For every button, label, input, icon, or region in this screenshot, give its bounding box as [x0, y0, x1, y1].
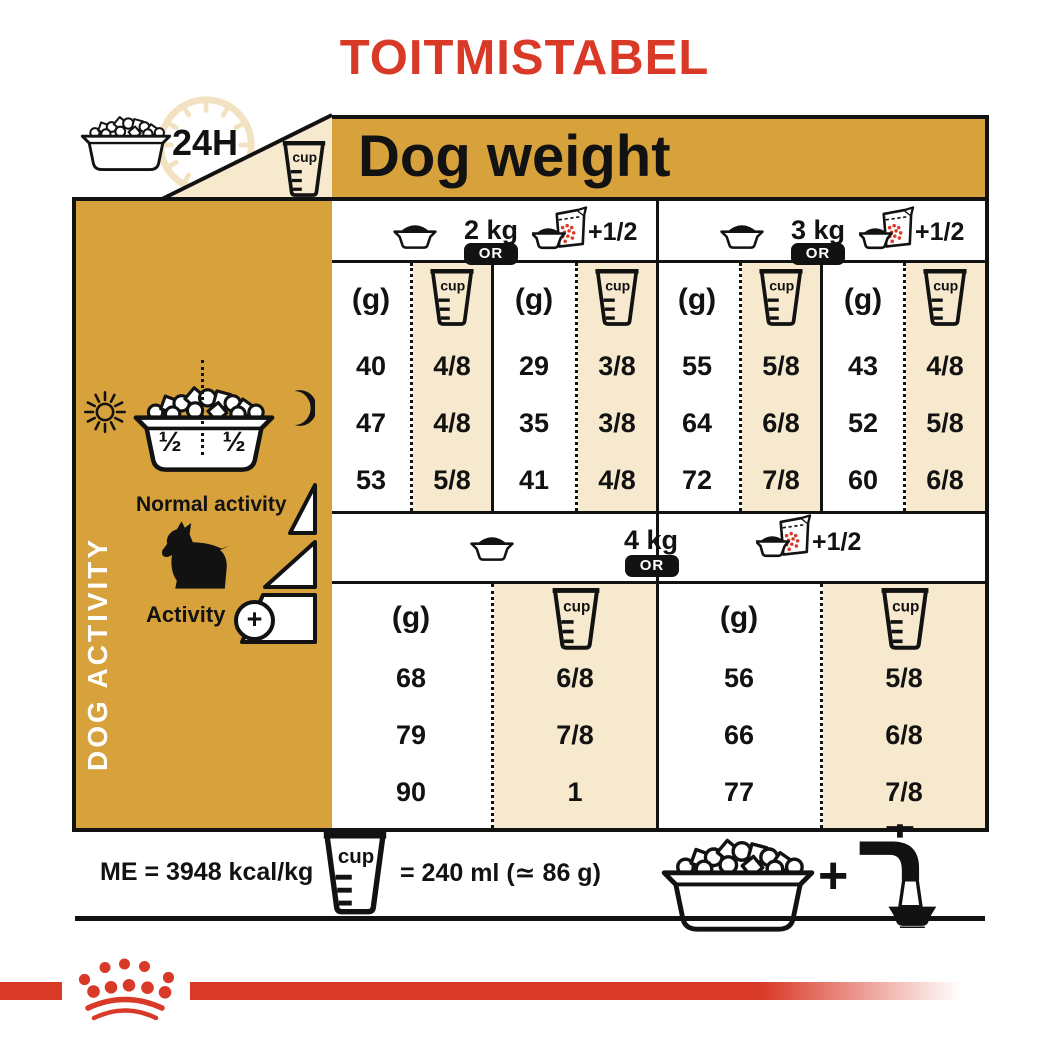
cup-header-icon — [594, 269, 640, 327]
col-dotted-divider — [820, 584, 823, 828]
cup-value: 3/8 — [577, 350, 657, 382]
bowl-pouch-icon — [859, 206, 915, 261]
grams-header: (g) — [823, 283, 903, 317]
dog-activity-vertical-label: DOG ACTIVITY — [82, 478, 120, 830]
plus-half-label: +1/2 — [588, 218, 637, 247]
measuring-cup-icon — [282, 141, 326, 198]
water-tap-icon — [852, 824, 944, 928]
col-dotted-divider — [491, 584, 494, 828]
kibble-bowl-icon — [80, 112, 172, 173]
or-badge: OR — [625, 555, 679, 577]
grams-value: 43 — [823, 350, 903, 382]
cup-value: 4/8 — [577, 464, 657, 496]
cup-value: 5/8 — [412, 464, 492, 496]
page-title: TOITMISTABEL — [0, 30, 1049, 86]
cup-header-icon — [551, 588, 601, 651]
cup-conversion-label: = 240 ml (≃ 86 g) — [400, 858, 601, 888]
grams-value: 68 — [371, 662, 451, 694]
cup-value: 7/8 — [864, 776, 944, 808]
bowl-icon — [719, 221, 765, 250]
grams-value: 64 — [657, 407, 737, 439]
cup-value: 5/8 — [905, 407, 985, 439]
grams-value: 56 — [699, 662, 779, 694]
cup-value: 6/8 — [905, 464, 985, 496]
grams-header: (g) — [371, 601, 451, 635]
red-bar-left — [0, 982, 62, 1000]
weight-4kg-label: 4 kg — [616, 525, 686, 556]
cups-column-2kg: 4/8 4/8 5/8 — [412, 350, 492, 496]
border-right — [985, 115, 989, 832]
grams-value: 40 — [331, 350, 411, 382]
feeding-table-page: TOITMISTABEL 24H Dog weight DOG ACTIVITY… — [0, 0, 1049, 1049]
grams-column-3kg-supplement: 43 52 60 — [823, 350, 903, 496]
hours-label: 24H — [172, 122, 238, 164]
dog-weight-title: Dog weight — [358, 123, 671, 190]
cups-column-4kg-supplement: 5/8 6/8 7/8 — [864, 662, 944, 808]
half-portion-right: ½ — [212, 426, 256, 458]
grams-column-2kg-supplement: 29 35 41 — [494, 350, 574, 496]
border-top — [332, 115, 989, 119]
cup-header-icon — [880, 588, 930, 651]
grams-value: 47 — [331, 407, 411, 439]
grams-column-3kg: 55 64 72 — [657, 350, 737, 496]
red-bar-right — [190, 982, 985, 1000]
grams-value: 77 — [699, 776, 779, 808]
royal-canin-crown-logo — [55, 945, 195, 1035]
cup-value: 4/8 — [905, 350, 985, 382]
grams-value: 79 — [371, 719, 451, 751]
cup-value: 7/8 — [741, 464, 821, 496]
grams-value: 35 — [494, 407, 574, 439]
cup-conversion-icon — [318, 832, 392, 916]
bowl-icon — [392, 221, 438, 250]
grams-header: (g) — [657, 283, 737, 317]
cup-value: 1 — [535, 776, 615, 808]
grams-value: 29 — [494, 350, 574, 382]
footer-rule — [75, 916, 985, 921]
or-badge: OR — [791, 243, 845, 265]
plus-sign: + — [818, 846, 848, 906]
cup-header-icon — [922, 269, 968, 327]
cups-column-4kg: 6/8 7/8 1 — [535, 662, 615, 808]
bowl-pouch-icon — [532, 206, 588, 261]
half-portion-left: ½ — [148, 426, 192, 458]
bowl-icon — [469, 533, 515, 562]
cup-value: 3/8 — [577, 407, 657, 439]
grams-column-2kg: 40 47 53 — [331, 350, 411, 496]
grams-value: 41 — [494, 464, 574, 496]
grams-value: 52 — [823, 407, 903, 439]
weight-3kg-label: 3 kg — [782, 215, 854, 246]
cup-value: 4/8 — [412, 350, 492, 382]
grams-header: (g) — [494, 283, 574, 317]
cup-value: 4/8 — [412, 407, 492, 439]
band4-bottom-line — [332, 581, 985, 584]
cups-column-3kg-supplement: 4/8 5/8 6/8 — [905, 350, 985, 496]
cup-header-icon — [429, 269, 475, 327]
or-badge: OR — [464, 243, 518, 265]
sun-icon — [81, 388, 129, 436]
plus-half-label: +1/2 — [812, 528, 861, 557]
cup-value: 6/8 — [864, 719, 944, 751]
grams-value: 66 — [699, 719, 779, 751]
grams-column-4kg-supplement: 56 66 77 — [699, 662, 779, 808]
cups-column-3kg: 5/8 6/8 7/8 — [741, 350, 821, 496]
dog-silhouette-icon — [156, 514, 236, 596]
cup-value: 7/8 — [535, 719, 615, 751]
cups-column-2kg-supplement: 3/8 3/8 4/8 — [577, 350, 657, 496]
grams-header: (g) — [699, 601, 779, 635]
bowl-pouch-icon — [756, 514, 812, 569]
cup-value: 6/8 — [535, 662, 615, 694]
weight-2kg-label: 2 kg — [455, 215, 527, 246]
activity-plus-badge: + — [234, 600, 275, 641]
cup-value: 5/8 — [741, 350, 821, 382]
grams-value: 53 — [331, 464, 411, 496]
grams-value: 90 — [371, 776, 451, 808]
grams-value: 72 — [657, 464, 737, 496]
cup-header-icon — [758, 269, 804, 327]
grams-header: (g) — [331, 283, 411, 317]
moon-icon — [286, 388, 315, 428]
bowl-split-dotted-line — [201, 360, 204, 455]
grams-value: 55 — [657, 350, 737, 382]
dog-weight-band: Dog weight — [332, 119, 985, 197]
me-kcal-label: ME = 3948 kcal/kg — [100, 858, 313, 887]
grams-value: 60 — [823, 464, 903, 496]
plus-half-label: +1/2 — [915, 218, 964, 247]
grams-column-4kg: 68 79 90 — [371, 662, 451, 808]
cup-value: 5/8 — [864, 662, 944, 694]
activity-label: Activity — [146, 602, 225, 628]
band4-top-line — [332, 511, 985, 514]
cup-value: 6/8 — [741, 407, 821, 439]
